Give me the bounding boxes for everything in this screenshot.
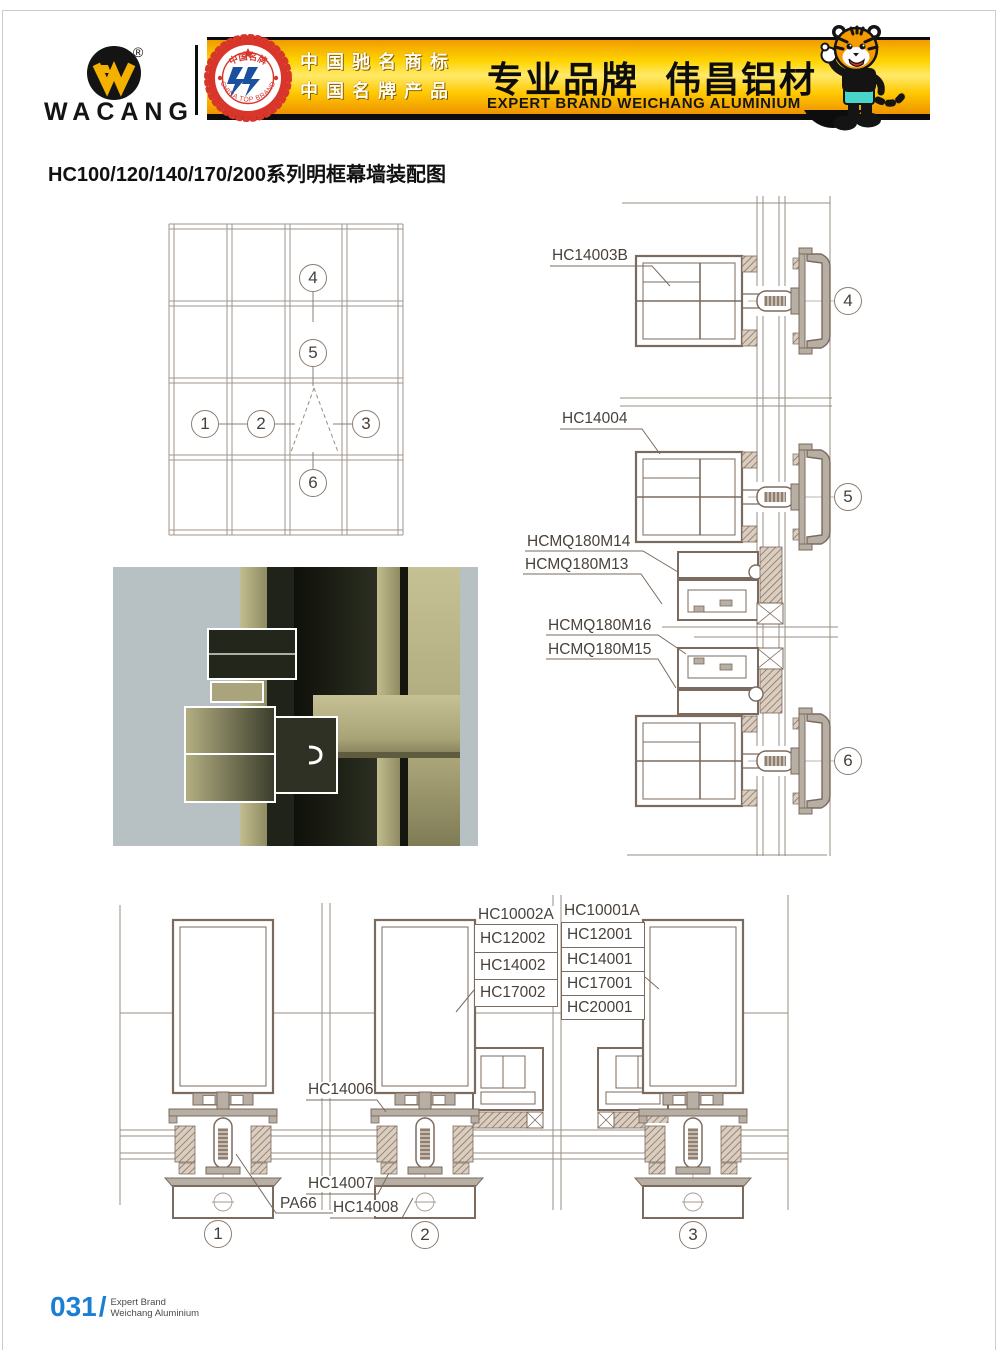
label-hcmq180m15: HCMQ180M15 [548, 642, 651, 658]
section-callout-5: 5 [834, 483, 862, 511]
label-hc14008: HC14008 [333, 1200, 399, 1216]
elevation-grid [169, 224, 403, 535]
section-callout-3: 3 [679, 1221, 707, 1249]
section-callout-6: 6 [834, 747, 862, 775]
page-number-separator: / [99, 1294, 107, 1320]
stack-left-row: HC14002 [475, 952, 557, 979]
label-hc14006: HC14006 [308, 1082, 374, 1098]
stack-left-row: HC12002 [475, 925, 557, 952]
stack-left-row: HC17002 [475, 979, 557, 1006]
stack-right-box: HC12001 HC14001 HC17001 HC20001 [561, 922, 645, 1020]
section-callout-1: 1 [204, 1220, 232, 1248]
subassembly-m16-m15 [678, 648, 783, 714]
section-callout-2: 2 [411, 1221, 439, 1249]
catalog-page: ® WACANG 中国驰名商标 中国名牌产品 专业品牌 伟昌铝材 EXPERT … [0, 0, 1000, 1357]
section-4-drawing [636, 248, 837, 354]
label-hcmq180m14: HCMQ180M14 [527, 534, 630, 550]
label-hc14007: HC14007 [308, 1176, 374, 1192]
label-pa66: PA66 [280, 1196, 317, 1212]
section-callout-4: 4 [834, 287, 862, 315]
label-hcmq180m16: HCMQ180M16 [548, 618, 651, 634]
stack-right-row: HC12001 [562, 923, 644, 947]
section-3-drawing [635, 920, 751, 1218]
footer-caption: Expert Brand Weichang Aluminium [111, 1297, 200, 1319]
subframe-section2 [473, 1048, 543, 1128]
label-hc14004: HC14004 [562, 411, 628, 427]
section-2-drawing [367, 920, 483, 1218]
callout-3: 3 [352, 410, 380, 438]
stack-left-box: HC12002 HC14002 HC17002 [474, 924, 558, 1007]
footer-caption-line1: Expert Brand [111, 1297, 166, 1308]
stack-right-row: HC14001 [562, 947, 644, 971]
section-1-drawing [165, 920, 281, 1218]
label-hcmq180m13: HCMQ180M13 [525, 557, 628, 573]
callout-1: 1 [191, 410, 219, 438]
stack-right-title: HC10001A [564, 902, 640, 920]
stack-left-title: HC10002A [478, 906, 554, 924]
section-5-drawing [636, 444, 837, 550]
profile-render-photo [113, 567, 478, 846]
callout-2: 2 [247, 410, 275, 438]
footer-caption-line2: Weichang Aluminium [111, 1308, 200, 1319]
stack-right-row: HC20001 [562, 995, 644, 1019]
callout-6: 6 [299, 469, 327, 497]
stack-right-row: HC17001 [562, 971, 644, 995]
footer: 031 / Expert Brand Weichang Aluminium [50, 1294, 199, 1320]
label-hc14003b: HC14003B [552, 248, 628, 264]
subassembly-m14-m13 [678, 547, 783, 624]
callout-5: 5 [299, 339, 327, 367]
page-number: 031 [50, 1294, 97, 1320]
section-6-drawing [636, 708, 837, 814]
callout-4: 4 [299, 264, 327, 292]
